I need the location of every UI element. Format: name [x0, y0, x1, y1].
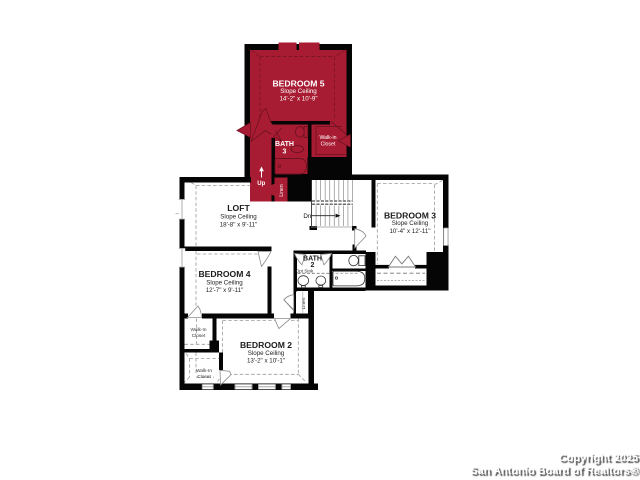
svg-text:Walk-In: Walk-In [190, 327, 206, 333]
svg-text:Up: Up [257, 181, 265, 187]
svg-text:Dn: Dn [303, 213, 311, 220]
svg-text:BEDROOM 2: BEDROOM 2 [240, 340, 292, 350]
svg-text:Slope Ceiling: Slope Ceiling [206, 280, 243, 287]
svg-text:Slope Ceiling: Slope Ceiling [392, 220, 429, 227]
svg-text:3: 3 [283, 149, 287, 156]
svg-text:Slope Ceiling: Slope Ceiling [280, 88, 317, 95]
svg-text:Slope Ceiling: Slope Ceiling [220, 214, 257, 221]
svg-text:BATH: BATH [275, 141, 294, 148]
svg-text:Linen: Linen [279, 184, 285, 196]
svg-text:18'-8" x 9'-11": 18'-8" x 9'-11" [220, 222, 258, 229]
svg-text:Linen: Linen [301, 297, 307, 309]
svg-text:BEDROOM 4: BEDROOM 4 [198, 269, 250, 279]
svg-text:Slope Ceiling: Slope Ceiling [248, 350, 285, 357]
svg-text:Closet: Closet [321, 141, 336, 147]
svg-text:LOFT: LOFT [227, 203, 250, 213]
svg-text:BEDROOM 5: BEDROOM 5 [272, 78, 324, 88]
svg-text:13'-2" x 10'-1": 13'-2" x 10'-1" [247, 357, 285, 364]
svg-text:BEDROOM 3: BEDROOM 3 [384, 211, 436, 221]
svg-text:Closet: Closet [192, 333, 206, 339]
svg-text:Closet: Closet [197, 374, 211, 380]
svg-text:Walk-in: Walk-in [319, 135, 336, 141]
svg-text:14'-2" x 10'-9": 14'-2" x 10'-9" [279, 96, 317, 103]
svg-text:Walk-In: Walk-In [196, 368, 212, 374]
svg-text:12'-7" x 9'-11": 12'-7" x 9'-11" [206, 287, 244, 294]
svg-text:Opt Sink: Opt Sink [296, 268, 314, 273]
svg-text:10'-4" x 12'-11": 10'-4" x 12'-11" [389, 228, 430, 235]
